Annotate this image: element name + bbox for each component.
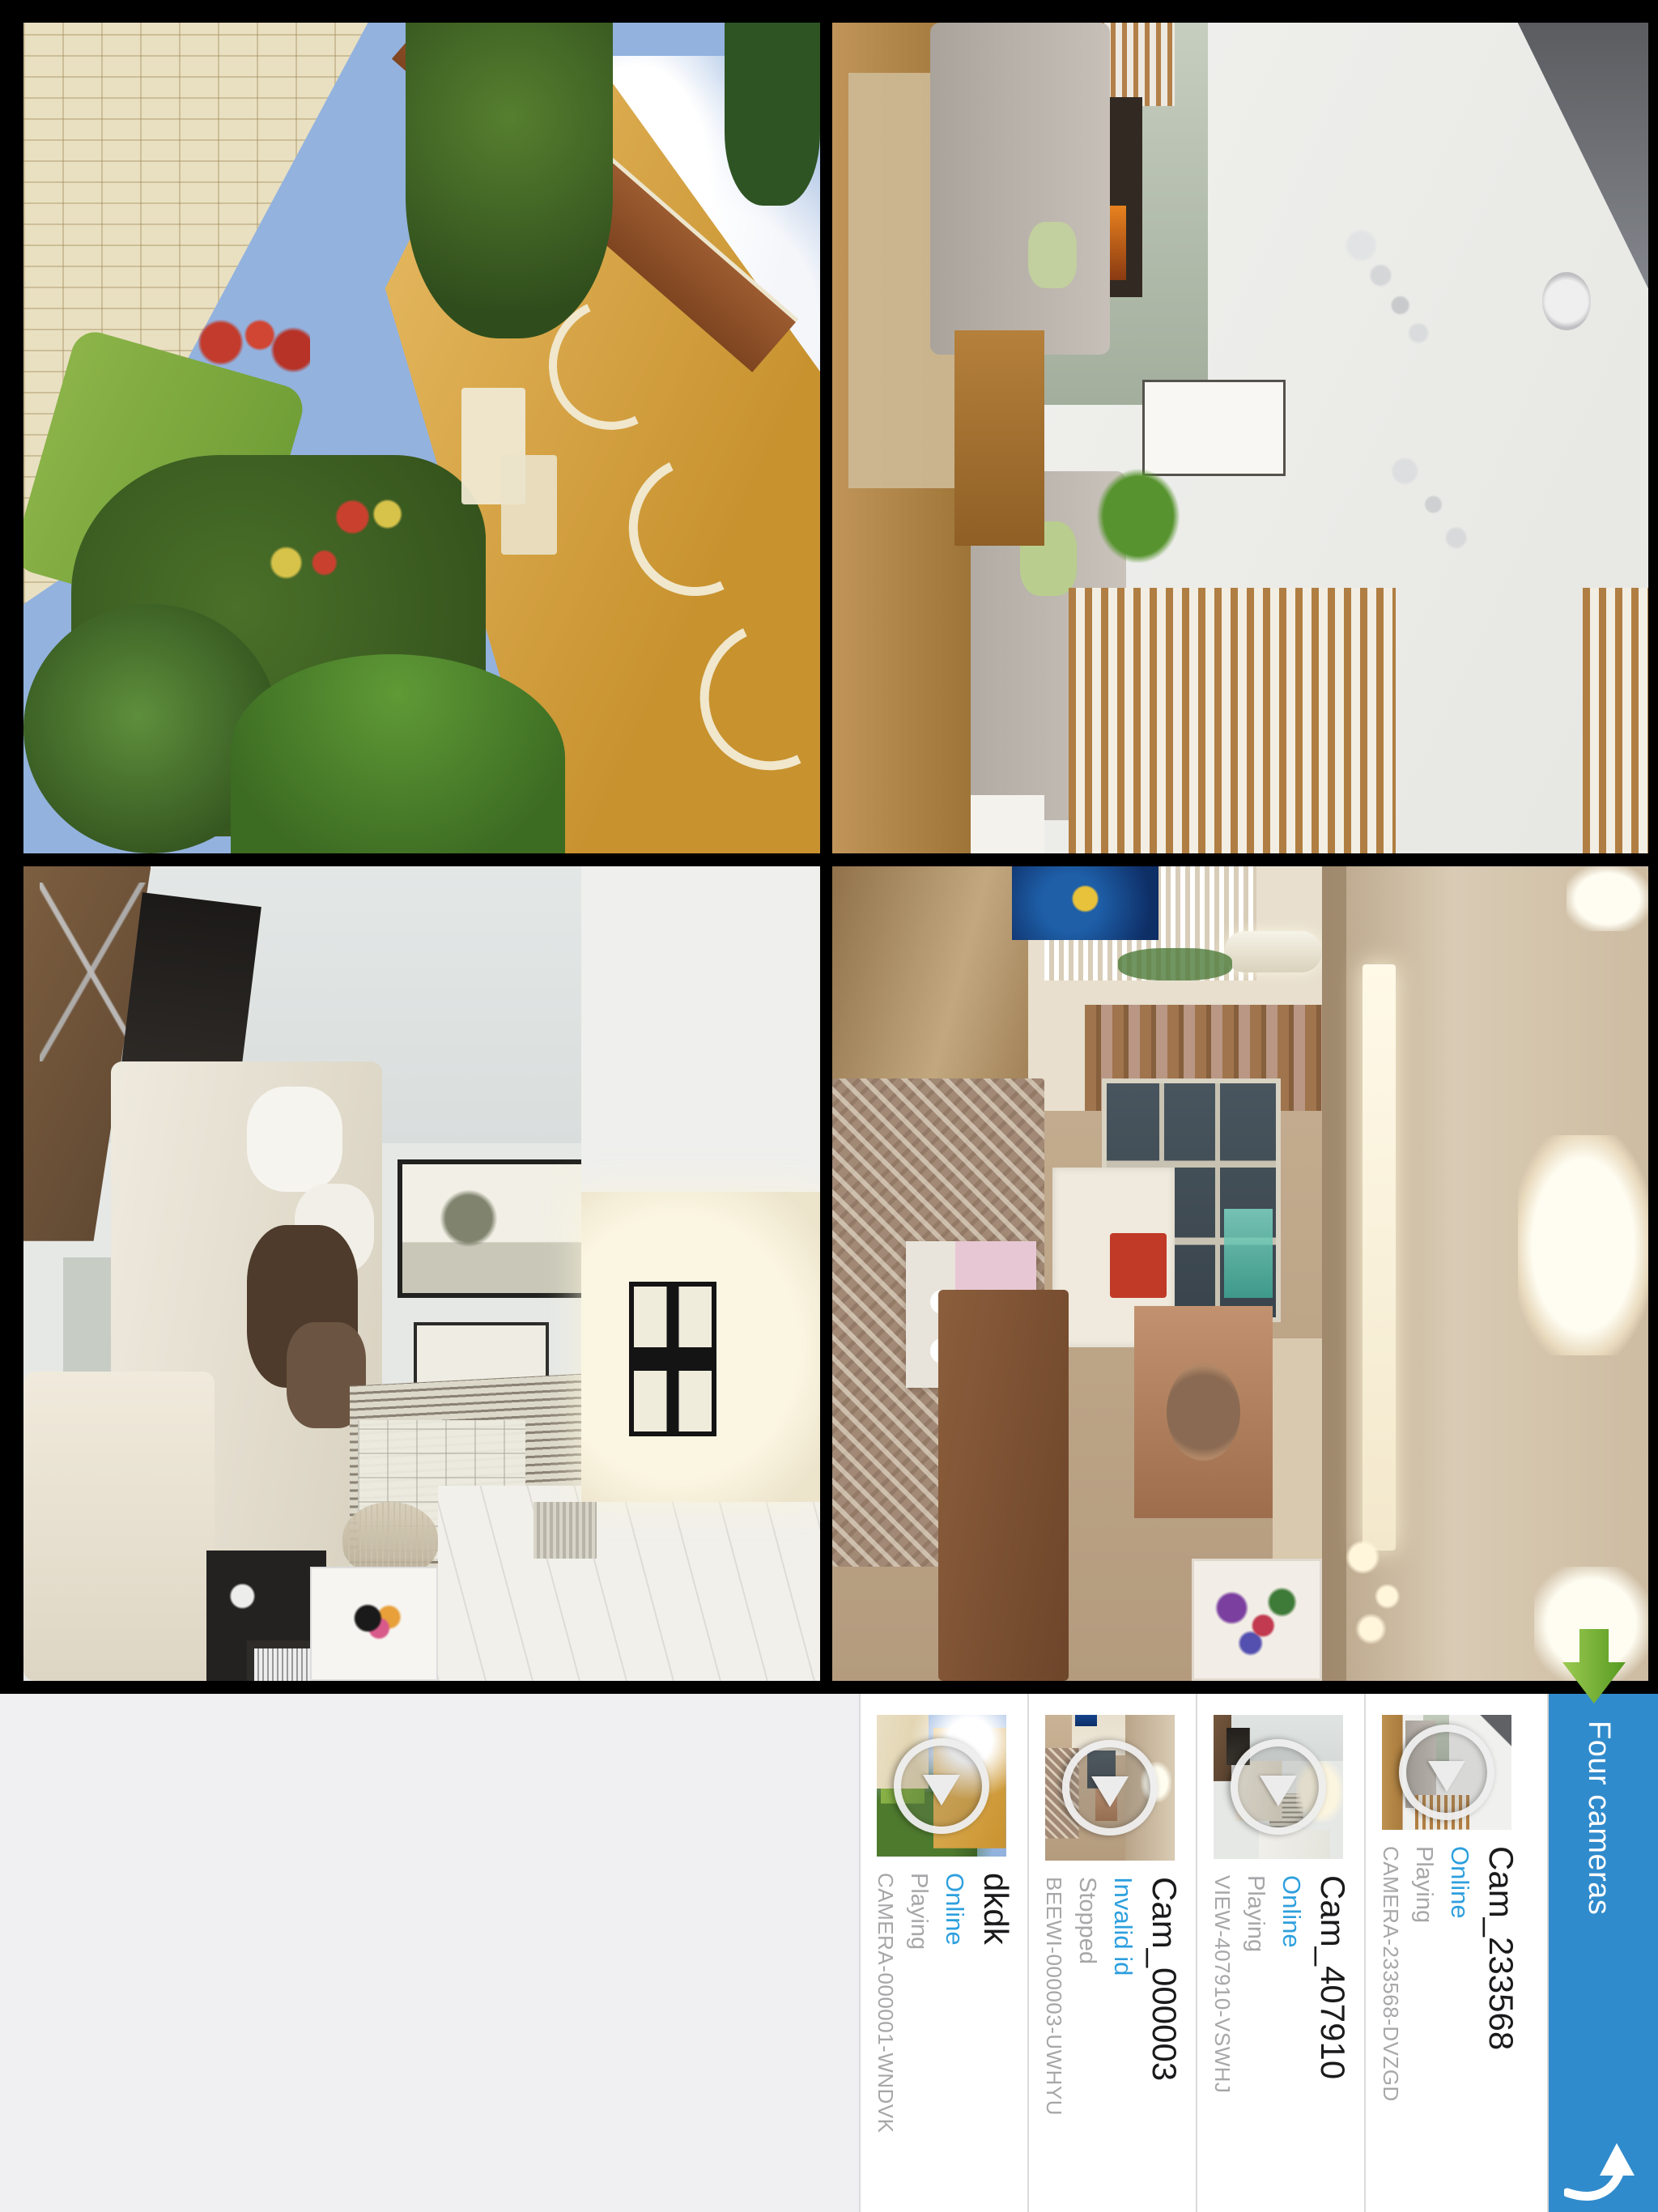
camera-name: dkdk: [974, 1873, 1018, 2133]
kitchen-dining-video: [832, 866, 1648, 1681]
panel-header: Four cameras: [1547, 1694, 1658, 2212]
camera-grid: [0, 0, 1658, 1694]
camera-device-id: BEEWI-000003-UWHYU: [1038, 1877, 1070, 2116]
play-icon: [894, 1738, 989, 1834]
camera-feed-cam-407910[interactable]: [23, 866, 820, 1681]
camera-status: Invalid id: [1104, 1877, 1142, 2116]
camera-thumbnail[interactable]: [1214, 1715, 1343, 1859]
camera-device-id: VIEW-407910-VSWHJ: [1206, 1875, 1239, 2094]
camera-thumbnail[interactable]: [1045, 1715, 1175, 1861]
landscape-app-stage: Four cameras Cam_233568 Online Playing: [0, 0, 1658, 2212]
camera-info: dkdk Online Playing CAMERA-000001-WNDVK: [869, 1873, 1027, 2133]
play-overlay: [1382, 1715, 1511, 1830]
green-forward-arrow-icon[interactable]: [1560, 1629, 1628, 1705]
white-living-room-video: [23, 866, 820, 1681]
camera-playback-state: Playing: [1407, 1846, 1441, 2102]
camera-list-item-dkdk[interactable]: dkdk Online Playing CAMERA-000001-WNDVK: [859, 1694, 1027, 2212]
camera-device-id: CAMERA-233568-DVZGD: [1375, 1846, 1407, 2102]
play-icon: [1062, 1740, 1158, 1836]
camera-thumbnail[interactable]: [877, 1715, 1006, 1857]
camera-info: Cam_000003 Invalid id Stopped BEEWI-0000…: [1038, 1877, 1196, 2116]
camera-info: Cam_233568 Online Playing CAMERA-233568-…: [1375, 1846, 1533, 2102]
camera-list-panel: Four cameras Cam_233568 Online Playing: [0, 1694, 1658, 2212]
camera-thumbnail[interactable]: [1382, 1715, 1511, 1830]
play-icon: [1399, 1725, 1494, 1820]
camera-status: Online: [1441, 1846, 1479, 2102]
camera-playback-state: Stopped: [1070, 1877, 1104, 2116]
camera-feed-dkdk[interactable]: [23, 23, 820, 853]
play-overlay: [1045, 1715, 1175, 1861]
camera-list-item-cam-233568[interactable]: Cam_233568 Online Playing CAMERA-233568-…: [1364, 1694, 1533, 2212]
camera-list-item-cam-407910[interactable]: Cam_407910 Online Playing VIEW-407910-VS…: [1196, 1694, 1364, 2212]
camera-device-id: CAMERA-000001-WNDVK: [869, 1873, 902, 2133]
app-root: { "header": { "title": "Four cameras" },…: [0, 0, 1658, 2212]
camera-info: Cam_407910 Online Playing VIEW-407910-VS…: [1206, 1875, 1364, 2094]
play-icon: [1231, 1739, 1326, 1835]
camera-name: Cam_407910: [1311, 1875, 1354, 2094]
curved-back-arrow-icon[interactable]: [1564, 2131, 1642, 2206]
camera-status: Online: [1273, 1875, 1311, 2094]
camera-playback-state: Playing: [1239, 1875, 1273, 2094]
camera-list-item-cam-000003[interactable]: Cam_000003 Invalid id Stopped BEEWI-0000…: [1027, 1694, 1196, 2212]
camera-list: Cam_233568 Online Playing CAMERA-233568-…: [859, 1694, 1547, 2212]
garden-villa-video: [23, 23, 820, 853]
camera-name: Cam_233568: [1479, 1846, 1523, 2102]
camera-status: Online: [936, 1873, 974, 2133]
camera-name: Cam_000003: [1142, 1877, 1186, 2116]
slat-living-room-video: [832, 23, 1648, 853]
camera-feed-cam-000003[interactable]: [832, 866, 1648, 1681]
camera-feed-cam-233568[interactable]: [832, 23, 1648, 853]
camera-playback-state: Playing: [902, 1873, 936, 2133]
play-overlay: [1214, 1715, 1343, 1859]
panel-title: Four cameras: [1581, 1694, 1626, 1915]
play-overlay: [877, 1715, 1006, 1857]
